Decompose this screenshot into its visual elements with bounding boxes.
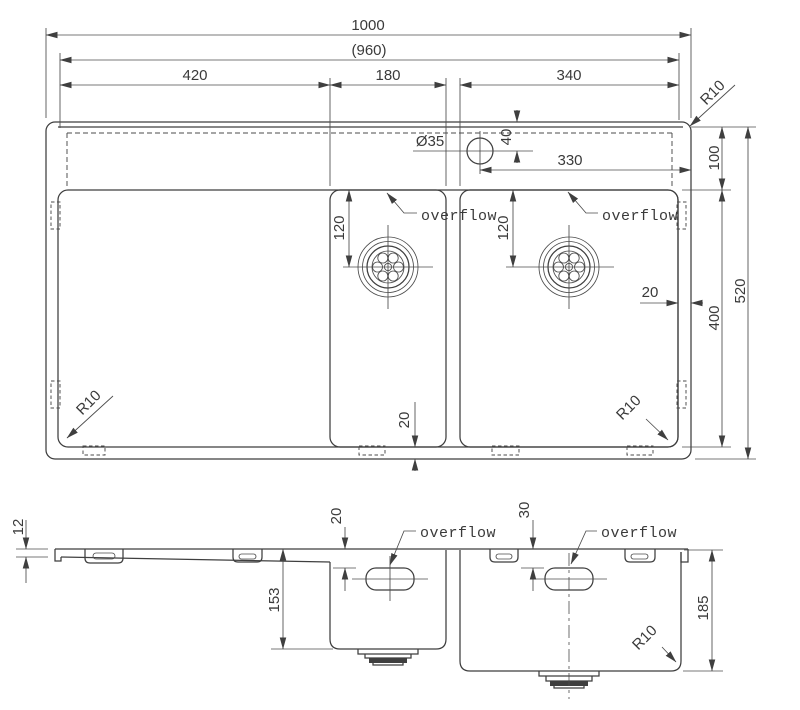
dim-faucet-from-right-label: 330 xyxy=(557,152,582,169)
radius-back-right: R10 xyxy=(690,77,735,126)
dim-faucet-hole-label: Ø35 xyxy=(416,133,444,150)
dim-faucet-from-back-label: 40 xyxy=(498,129,515,146)
dim-ledge-depth-label: 100 xyxy=(706,145,723,170)
side-bowl1-profile xyxy=(330,550,446,649)
outer-rim-outline xyxy=(46,122,691,459)
mounting-clips xyxy=(51,202,686,455)
drain-bowl2 xyxy=(506,225,614,309)
side-overflow-callout-bowl2: overflow xyxy=(571,525,677,564)
radius-side-corner-label: R10 xyxy=(629,622,660,653)
dim-drain1-offset-label: 120 xyxy=(331,215,348,240)
dim-overall-width: 1000 xyxy=(46,17,691,35)
dim-faucet-from-back: 40 xyxy=(498,110,517,163)
radius-back-right-label: R10 xyxy=(697,77,728,108)
technical-drawing-canvas: 1000 (960) 420 180 340 Ø35 xyxy=(0,0,800,710)
radius-front-left-label: R10 xyxy=(73,387,104,418)
dim-drain2-offset-label: 120 xyxy=(495,215,512,240)
dim-overflow2-depth-label: 30 xyxy=(516,502,533,519)
side-overflow-slot-bowl1 xyxy=(352,556,428,601)
basin-zone-outline xyxy=(58,190,678,447)
dim-overflow2-depth: 30 xyxy=(516,502,544,591)
radius-front-right: R10 xyxy=(613,392,668,440)
sink-drawing: 1000 (960) 420 180 340 Ø35 xyxy=(0,0,800,710)
dim-bowl1-depth: 153 xyxy=(266,549,333,649)
side-left-edge xyxy=(55,549,61,561)
dim-bowl2-width: 340 xyxy=(460,67,679,85)
dim-overall-depth-label: 520 xyxy=(732,278,749,303)
dim-faucet-hole: Ø35 xyxy=(416,133,444,150)
dim-bowl1-width-label: 180 xyxy=(375,67,400,84)
clip-left-back xyxy=(51,202,60,229)
side-view-dimensions: 12 20 30 153 185 xyxy=(10,502,723,671)
side-drain-boss-bowl1 xyxy=(358,649,418,665)
dim-overall-width-label: 1000 xyxy=(351,17,384,34)
sink-outline xyxy=(46,122,691,459)
dim-bowl2-depth-label: 185 xyxy=(695,595,712,620)
dim-inner-width-label: (960) xyxy=(351,42,386,59)
clip-left-front xyxy=(51,381,60,408)
overflow-callout-bowl1: overflow xyxy=(387,193,497,225)
dim-bowl-zone-depth-label: 400 xyxy=(706,305,723,330)
side-overflow-callout-bowl1: overflow xyxy=(390,525,496,565)
overflow-bowl1-label: overflow xyxy=(421,208,497,225)
dim-bowl2-depth: 185 xyxy=(683,550,723,671)
dim-drainboard-width-label: 420 xyxy=(182,67,207,84)
dim-bowl2-width-label: 340 xyxy=(556,67,581,84)
radius-side-corner: R10 xyxy=(629,622,676,662)
dim-side-gap: 20 xyxy=(640,284,703,303)
top-view: 1000 (960) 420 180 340 Ø35 xyxy=(46,17,756,471)
dim-overflow1-depth-label: 20 xyxy=(328,508,345,525)
side-mounting-tabs xyxy=(85,549,655,563)
side-overflow-bowl2-label: overflow xyxy=(601,525,677,542)
side-view: 12 20 30 153 185 xyxy=(10,502,723,699)
dim-bowl1-depth-label: 153 xyxy=(266,587,283,612)
overflow-callout-bowl2: overflow xyxy=(568,192,678,225)
dim-ledge-depth: 100 xyxy=(706,127,723,190)
dim-bowl-zone-depth: 400 xyxy=(706,190,723,447)
dim-rim-height-label: 12 xyxy=(10,519,27,536)
dim-faucet-from-right: 330 xyxy=(480,152,691,170)
side-overflow-bowl1-label: overflow xyxy=(420,525,496,542)
dim-front-gap-label: 20 xyxy=(396,412,413,429)
dim-drain1-offset: 120 xyxy=(331,190,349,267)
dim-drain2-offset: 120 xyxy=(495,190,513,267)
top-view-dimensions: 1000 (960) 420 180 340 Ø35 xyxy=(46,17,756,471)
drain-bowl1 xyxy=(343,225,433,309)
side-profile xyxy=(55,549,688,671)
overflow-bowl2-label: overflow xyxy=(602,208,678,225)
radius-front-left: R10 xyxy=(67,387,113,438)
side-drainboard-slope xyxy=(61,557,330,562)
dim-bowl1-width: 180 xyxy=(330,67,446,85)
dim-rim-height: 12 xyxy=(10,519,48,583)
dim-side-gap-label: 20 xyxy=(642,284,659,301)
side-right-edge xyxy=(681,549,688,562)
radius-front-right-label: R10 xyxy=(613,392,644,423)
dim-drainboard-width: 420 xyxy=(60,67,330,85)
dim-inner-width: (960) xyxy=(60,42,679,60)
dim-overall-depth: 520 xyxy=(732,127,749,459)
dim-front-gap: 20 xyxy=(396,402,415,471)
